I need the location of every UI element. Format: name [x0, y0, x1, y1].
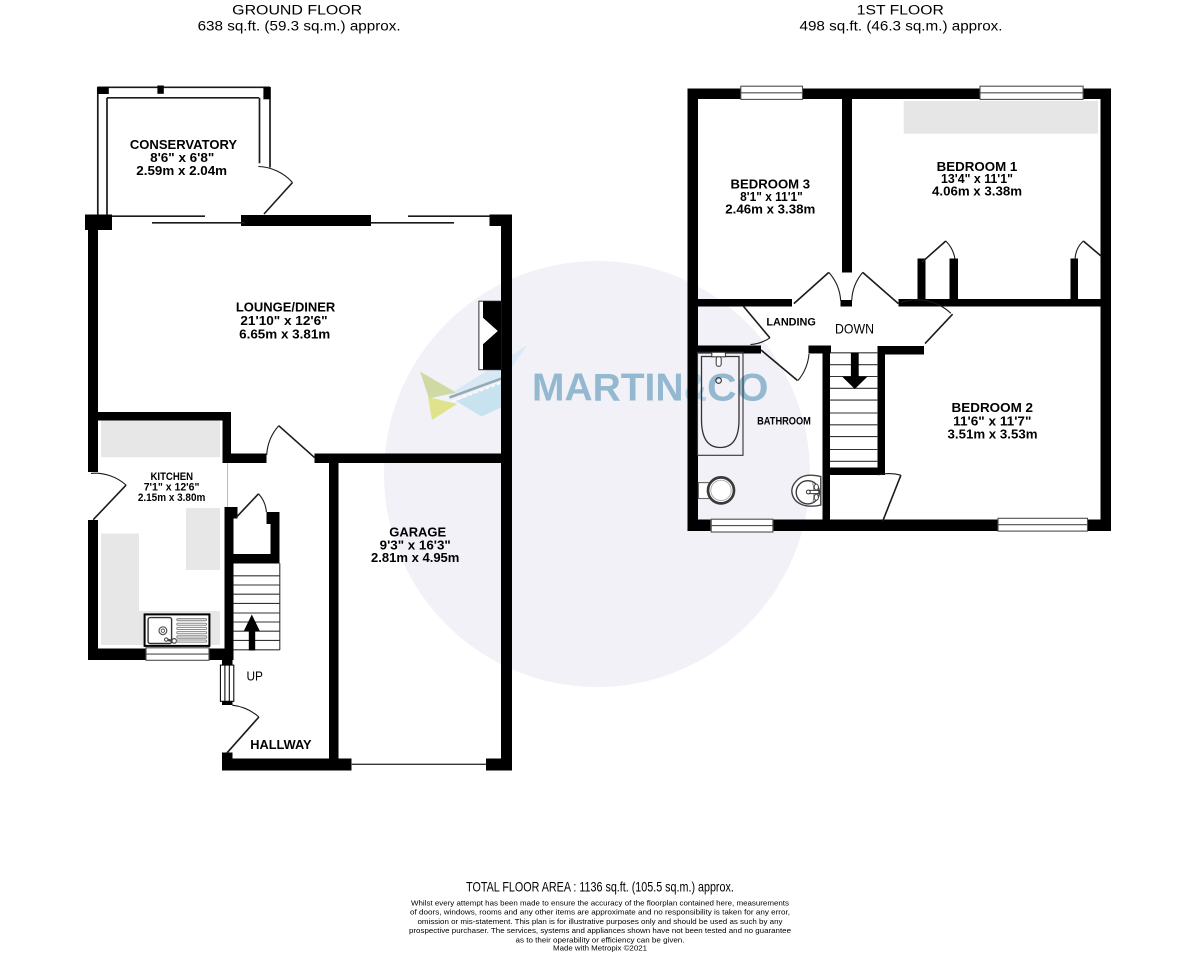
svg-text:498 sq.ft. (46.3 sq.m.) approx: 498 sq.ft. (46.3 sq.m.) approx.	[800, 19, 1003, 34]
svg-text:CO: CO	[707, 367, 769, 410]
svg-text:HALLWAY: HALLWAY	[250, 738, 312, 752]
svg-text:BEDROOM 2: BEDROOM 2	[952, 401, 1034, 415]
svg-text:1ST FLOOR: 1ST FLOOR	[857, 3, 944, 18]
svg-text:11'6" x 11'7": 11'6" x 11'7"	[953, 414, 1031, 428]
svg-text:TOTAL FLOOR AREA : 1136 sq.ft.: TOTAL FLOOR AREA : 1136 sq.ft. (105.5 sq…	[466, 879, 734, 895]
svg-text:MARTIN: MARTIN	[532, 367, 684, 410]
svg-text:2.81m x 4.95m: 2.81m x 4.95m	[371, 551, 459, 565]
svg-text:LOUNGE/DINER: LOUNGE/DINER	[236, 300, 335, 314]
svg-text:DOWN: DOWN	[835, 321, 874, 336]
svg-text:of doors, windows, rooms and a: of doors, windows, rooms and any other i…	[410, 908, 790, 917]
svg-text:LANDING: LANDING	[766, 316, 816, 328]
svg-text:638 sq.ft. (59.3 sq.m.) approx: 638 sq.ft. (59.3 sq.m.) approx.	[198, 19, 401, 34]
svg-text:BATHROOM: BATHROOM	[757, 415, 811, 427]
svg-text:GARAGE: GARAGE	[389, 525, 446, 539]
svg-text:2.46m x 3.38m: 2.46m x 3.38m	[725, 203, 815, 217]
svg-text:21'10" x 12'6": 21'10" x 12'6"	[240, 314, 327, 328]
svg-text:prospective purchaser. The ser: prospective purchaser. The services, sys…	[409, 926, 791, 935]
svg-text:2.59m x 2.04m: 2.59m x 2.04m	[136, 163, 227, 178]
svg-text:6.65m x 3.81m: 6.65m x 3.81m	[239, 327, 330, 341]
svg-text:4.06m x 3.38m: 4.06m x 3.38m	[932, 184, 1022, 198]
svg-text:Made with Metropix ©2021: Made with Metropix ©2021	[553, 944, 647, 953]
svg-text:3.51m x 3.53m: 3.51m x 3.53m	[948, 427, 1038, 441]
svg-text:UP: UP	[246, 669, 263, 684]
svg-text:Whilst every attempt has been: Whilst every attempt has been made to en…	[411, 899, 789, 908]
svg-text:omission or mis-statement. Thi: omission or mis-statement. This plan is …	[418, 917, 783, 926]
svg-text:GROUND FLOOR: GROUND FLOOR	[232, 3, 362, 18]
svg-text:2.15m x 3.80m: 2.15m x 3.80m	[138, 492, 206, 504]
